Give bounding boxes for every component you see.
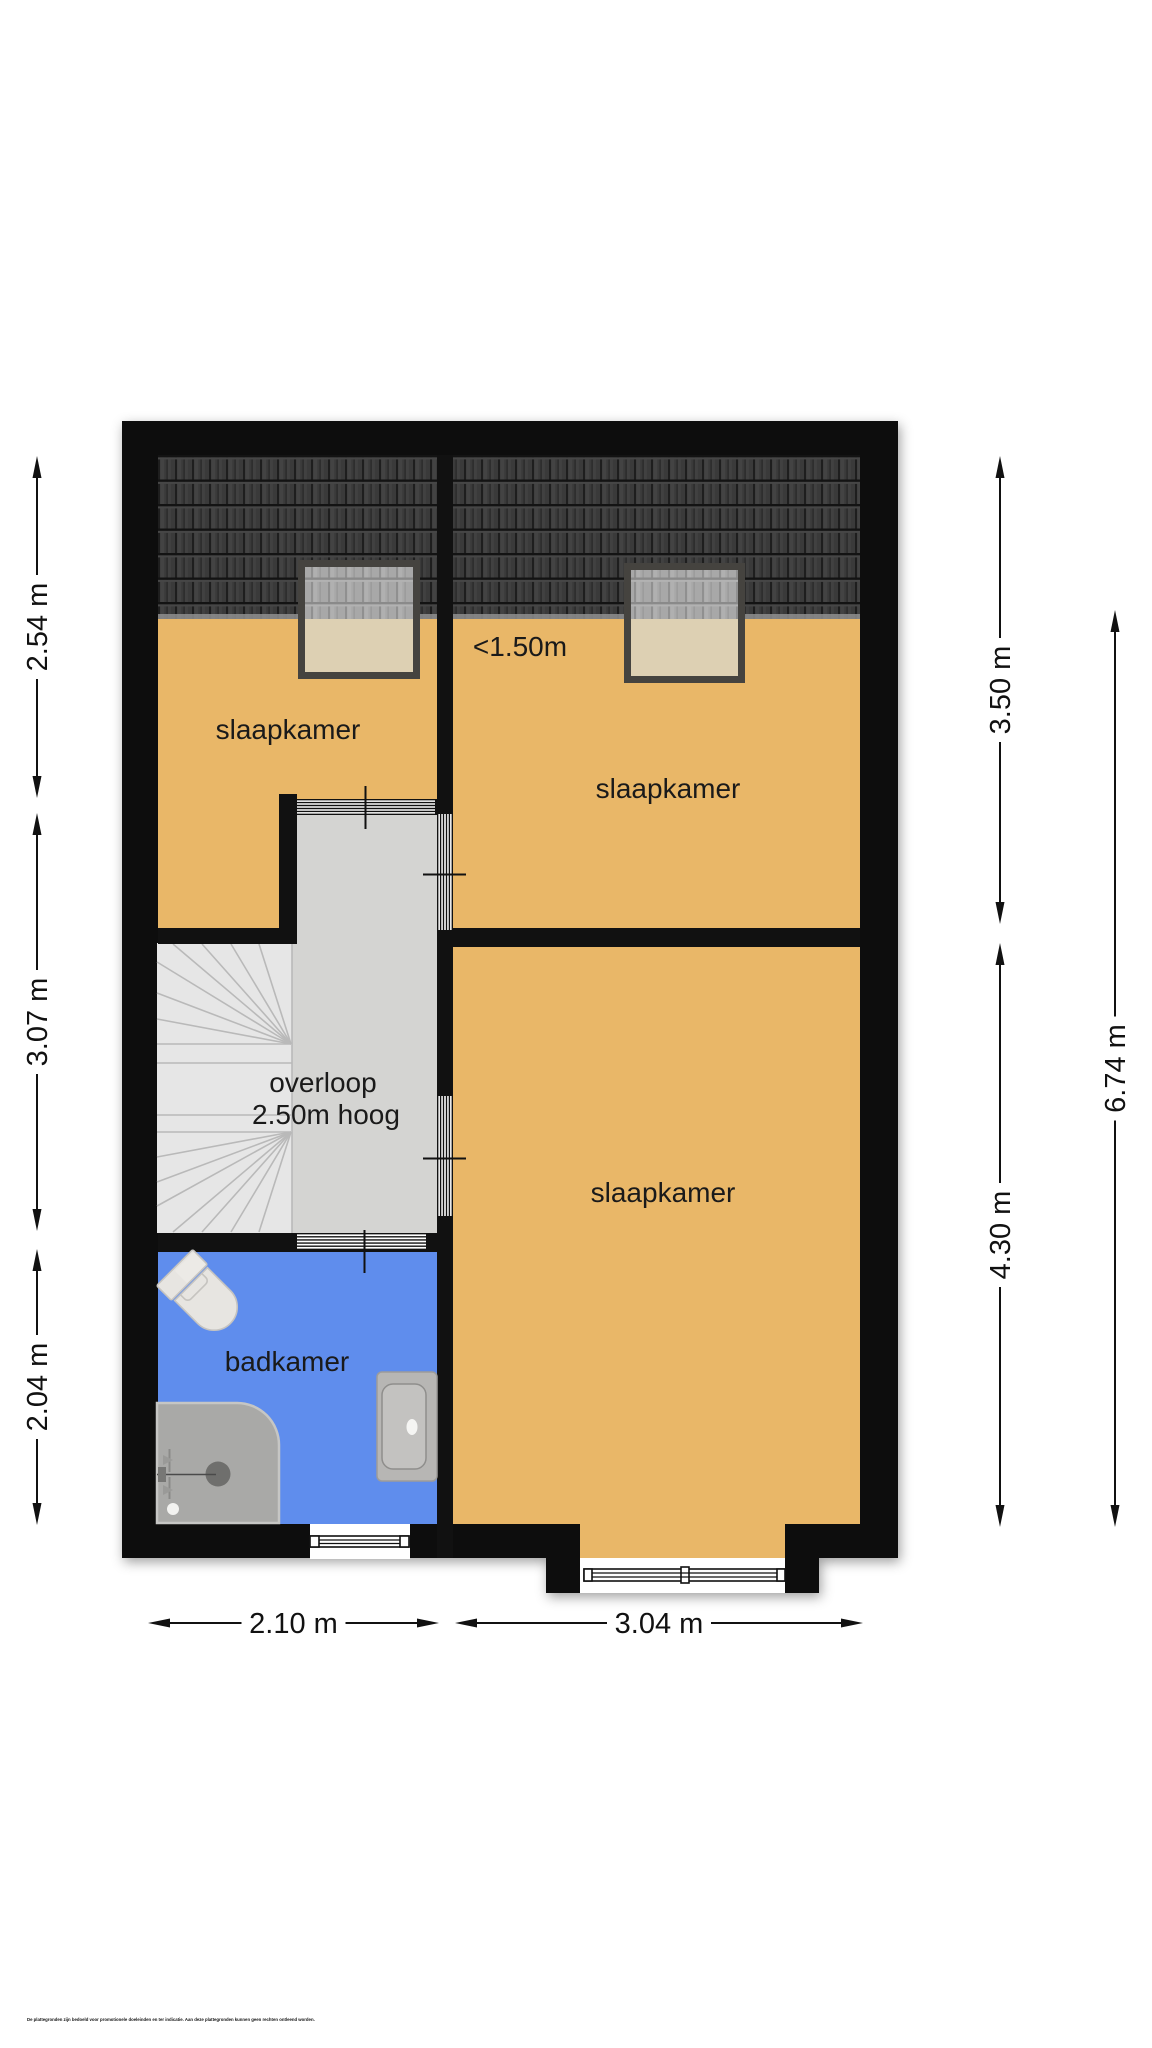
svg-text:3.04 m: 3.04 m: [615, 1608, 704, 1640]
svg-text:slaapkamer: slaapkamer: [596, 773, 741, 804]
svg-text:2.04 m: 2.04 m: [22, 1343, 54, 1432]
svg-text:2.54 m: 2.54 m: [22, 583, 54, 672]
svg-text:2.50m hoog: 2.50m hoog: [252, 1099, 400, 1130]
svg-text:6.74 m: 6.74 m: [1100, 1024, 1132, 1113]
svg-text:slaapkamer: slaapkamer: [216, 714, 361, 745]
svg-text:<1.50m: <1.50m: [473, 631, 567, 662]
svg-text:slaapkamer: slaapkamer: [591, 1177, 736, 1208]
svg-text:4.30 m: 4.30 m: [985, 1191, 1017, 1280]
svg-text:De plattegronden zijn bedoeld: De plattegronden zijn bedoeld voor promo…: [27, 2017, 315, 2022]
svg-text:3.50 m: 3.50 m: [985, 646, 1017, 735]
svg-text:overloop: overloop: [269, 1067, 376, 1098]
svg-text:3.07 m: 3.07 m: [22, 978, 54, 1067]
svg-text:2.10 m: 2.10 m: [249, 1608, 338, 1640]
svg-text:badkamer: badkamer: [225, 1346, 350, 1377]
